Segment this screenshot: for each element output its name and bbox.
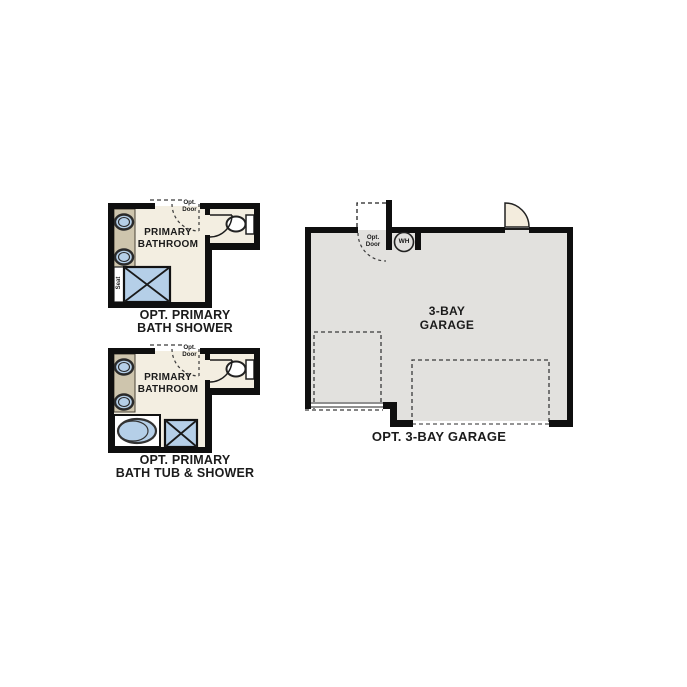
sink-icon (115, 395, 133, 410)
bath2-opt-door-label: Opt. Door (176, 345, 203, 358)
entry-door-swing-icon (505, 203, 529, 227)
garage-room-label: 3-BAY GARAGE (377, 304, 517, 332)
bath2-caption: OPT. PRIMARY BATH TUB & SHOWER (75, 454, 295, 479)
toilet-tank-icon (246, 215, 254, 234)
water-heater-label: WH (394, 238, 414, 245)
sink-icon (115, 250, 133, 265)
bath1-seat-label: Seat (116, 268, 122, 298)
bath1-room-label: PRIMARY BATHROOM (113, 227, 223, 251)
bath1-opt-door-label: Opt. Door (176, 200, 203, 213)
bath-shower-plan (108, 200, 260, 308)
toilet-icon (227, 362, 246, 377)
garage-caption: OPT. 3-BAY GARAGE (329, 430, 549, 443)
bath1-caption: OPT. PRIMARY BATH SHOWER (85, 309, 285, 334)
garage-opt-door-label: Opt. Door (359, 235, 387, 248)
bath-tub-shower-plan (108, 345, 260, 453)
floor-plan-canvas: PRIMARY BATHROOM Opt. Door Seat OPT. PRI… (0, 0, 687, 687)
toilet-icon (227, 217, 246, 232)
bath2-room-label: PRIMARY BATHROOM (113, 372, 223, 396)
toilet-tank-icon (246, 360, 254, 379)
opt-door-closet-outline (357, 203, 389, 227)
floor-plan-graphics (0, 0, 687, 687)
